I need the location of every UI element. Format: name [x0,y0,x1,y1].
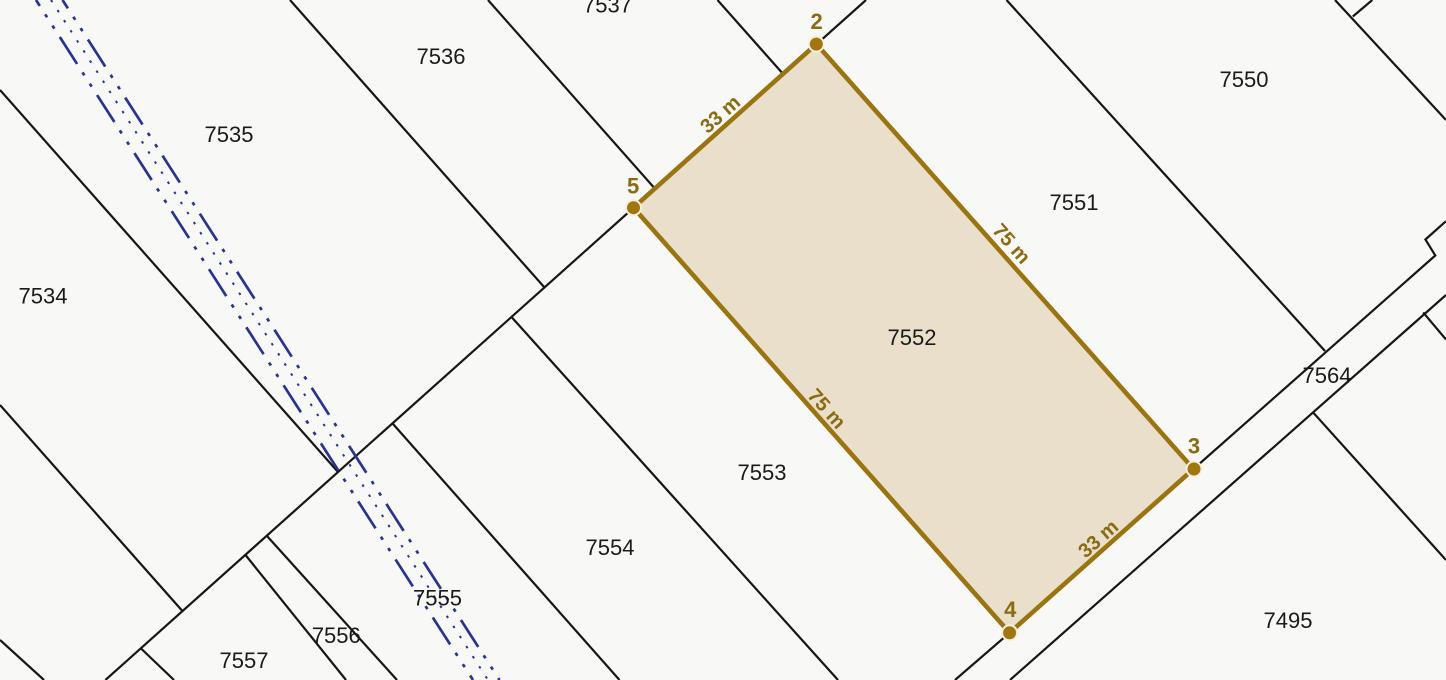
svg-text:7495: 7495 [1264,608,1313,633]
svg-text:7534: 7534 [19,284,68,309]
svg-text:7550: 7550 [1220,67,1269,92]
svg-text:3: 3 [1188,434,1200,459]
svg-text:4: 4 [1004,597,1017,622]
svg-text:7537: 7537 [583,0,632,18]
svg-text:7557: 7557 [220,648,269,673]
svg-text:7554: 7554 [586,535,635,560]
svg-text:7555: 7555 [413,586,462,611]
svg-text:7551: 7551 [1050,190,1099,215]
svg-text:7535: 7535 [205,122,254,147]
svg-text:7536: 7536 [417,44,466,69]
svg-text:7556: 7556 [312,623,361,648]
svg-text:7553: 7553 [738,460,787,485]
svg-text:2: 2 [810,9,822,34]
svg-text:5: 5 [627,174,639,199]
svg-text:7564: 7564 [1303,363,1352,388]
svg-text:7552: 7552 [888,325,937,350]
